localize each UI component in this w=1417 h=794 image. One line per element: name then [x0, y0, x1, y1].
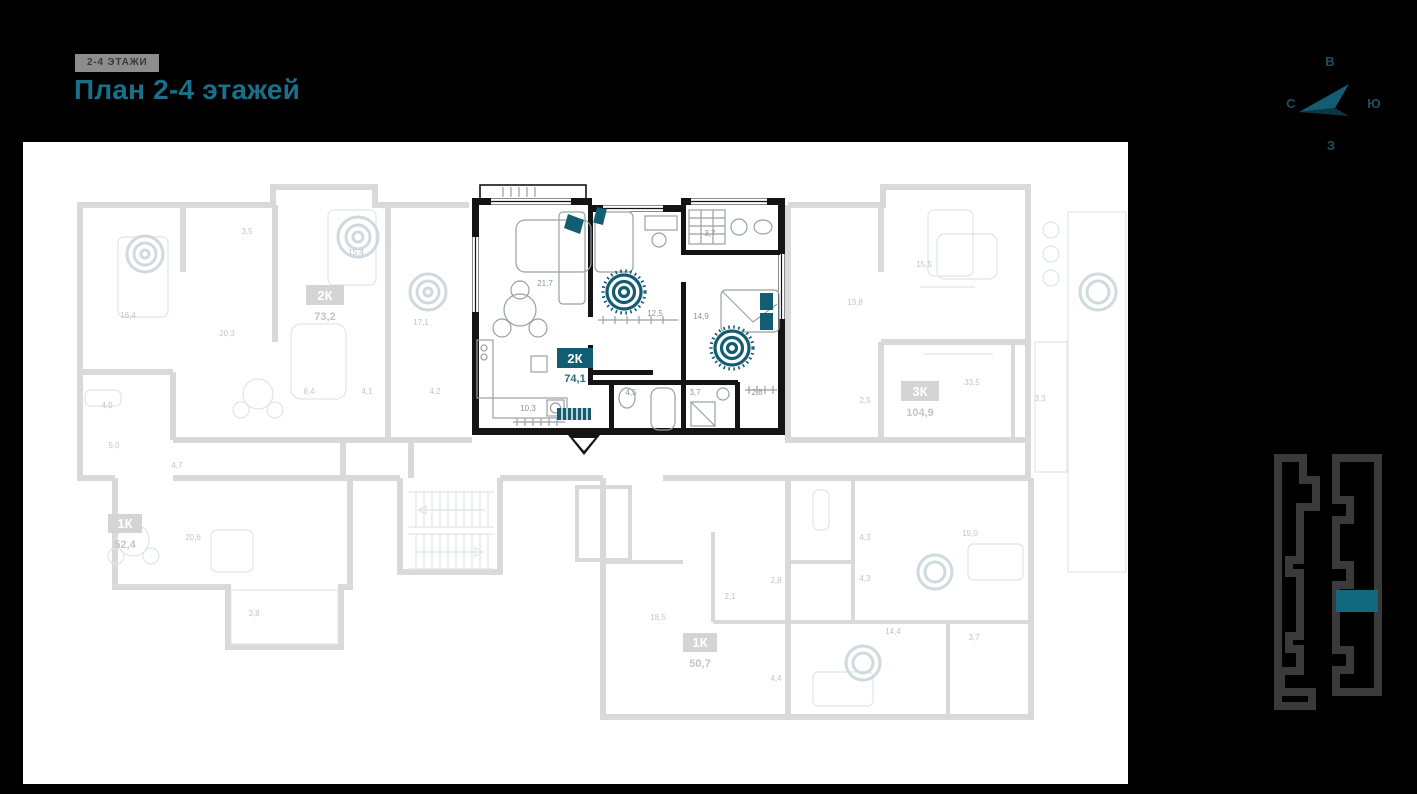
rug: [937, 234, 997, 279]
rug-spiral: [853, 653, 873, 673]
wall: [472, 198, 479, 435]
rug-spiral: [620, 288, 629, 297]
room-area: 20,6: [185, 533, 201, 542]
compass-right-letter: Ю: [1367, 96, 1380, 111]
bed-pillow: [760, 313, 773, 330]
unit-type: 1К: [692, 635, 707, 650]
room-area: 10,3: [520, 404, 536, 413]
washbasin: [731, 219, 747, 235]
room-area: 15,5: [916, 260, 932, 269]
toilet: [754, 220, 772, 234]
room-area: 4,2: [429, 387, 441, 396]
building-minimap[interactable]: [1256, 442, 1417, 722]
wall: [609, 382, 614, 435]
rug: [211, 530, 253, 572]
room-area: 18,5: [650, 613, 666, 622]
room-area: 6,4: [303, 387, 315, 396]
compass-left-letter: С: [1286, 96, 1296, 111]
rug-spiral: [846, 646, 880, 680]
staircase: [400, 478, 500, 572]
room-area: 12,5: [647, 309, 663, 318]
rug-fringe: [711, 327, 753, 369]
floorplan-gray-section: 2К 73,2 3К 104,9 1К 52,4 1К 50,7: [80, 187, 1126, 717]
floor-range-badge: 2-4 ЭТАЖИ: [75, 54, 159, 72]
wall: [115, 478, 350, 647]
rug: [291, 324, 346, 399]
page: 2-4 ЭТАЖИ План 2-4 этажей: [0, 0, 1417, 794]
room-area: 20,3: [219, 329, 235, 338]
rug-spiral: [424, 288, 432, 296]
rug-spiral: [1087, 281, 1109, 303]
wall: [593, 370, 653, 375]
washbasin: [717, 388, 729, 400]
bed: [813, 672, 873, 706]
rug-spiral: [134, 243, 156, 265]
basin: [1043, 270, 1059, 286]
room-area: 17,1: [413, 318, 429, 327]
unit-type: 2К: [567, 351, 582, 366]
unit-badge-highlighted[interactable]: 2К 74,1: [557, 348, 593, 385]
room-area: 14,9: [693, 312, 709, 321]
chair: [143, 548, 159, 564]
bed-pillow: [760, 293, 773, 310]
unit-type: 1К: [117, 516, 132, 531]
chair: [511, 281, 529, 299]
floorplan-canvas: 2К 73,2 3К 104,9 1К 52,4 1К 50,7: [23, 142, 1128, 784]
rug-spiral: [353, 232, 363, 242]
balcony: [480, 185, 586, 199]
room-area: 13,8: [847, 298, 863, 307]
shower-glass: [691, 402, 715, 426]
room-area: 33,5: [964, 378, 980, 387]
basin: [1043, 222, 1059, 238]
rug-spiral: [417, 281, 439, 303]
wall: [603, 478, 1031, 717]
wall: [681, 282, 686, 435]
bathtub: [813, 490, 829, 530]
wall: [681, 205, 686, 255]
wall: [1068, 212, 1126, 572]
wall: [788, 187, 1028, 205]
unit-type: 2К: [317, 288, 332, 303]
stair-arrows: [415, 506, 485, 556]
rug-spiral: [728, 344, 737, 353]
rug-spiral: [614, 282, 635, 303]
room-area: 3,7: [704, 229, 716, 238]
rug-spiral: [1080, 274, 1116, 310]
chair: [652, 233, 666, 247]
room-area: 4,7: [171, 461, 183, 470]
balcony: [231, 590, 338, 644]
wardrobe-rail: [598, 316, 678, 324]
unit-area: 73,2: [314, 311, 335, 323]
basin: [1043, 246, 1059, 262]
rug-spiral: [141, 250, 149, 258]
minimap-left-wing: [1278, 458, 1316, 706]
rug-spiral: [722, 338, 743, 359]
chair: [529, 319, 547, 337]
room-area: 3,5: [241, 227, 253, 236]
rug-spiral: [346, 225, 370, 249]
burner: [481, 345, 487, 351]
room-area: 4,3: [859, 574, 871, 583]
utility-shaft: [557, 408, 591, 420]
unit-2k-left[interactable]: 2К 73,2: [306, 285, 344, 323]
unit-area: 52,4: [114, 539, 136, 551]
stair-edge: [408, 492, 494, 569]
sofa-cushion: [564, 214, 584, 234]
unit-1k-bottom-middle[interactable]: 1К 50,7: [683, 633, 717, 670]
burner: [481, 354, 487, 360]
room-area: 4,1: [361, 387, 373, 396]
chair: [493, 319, 511, 337]
minimap-right-wing: [1336, 458, 1378, 692]
compass: В Ю З С: [1283, 46, 1383, 154]
rug-spiral: [410, 274, 446, 310]
page-title: План 2-4 этажей: [74, 74, 300, 106]
wall: [273, 187, 469, 205]
rug-spiral: [127, 236, 163, 272]
bath-tiles: [689, 210, 725, 244]
room-area: 15,0: [962, 529, 978, 538]
room-area: 2,5: [859, 396, 871, 405]
room-area: 3,3: [1034, 394, 1046, 403]
bed: [968, 544, 1023, 580]
room-area: 4,5: [625, 388, 637, 397]
chair: [267, 402, 283, 418]
rug-fringe: [603, 271, 645, 313]
compass-bottom-letter: З: [1327, 138, 1335, 153]
kitchen-counter: [477, 340, 493, 398]
unit-type: 3К: [912, 384, 927, 399]
rug-spiral: [925, 562, 945, 582]
chair: [233, 402, 249, 418]
wall: [1035, 342, 1067, 472]
room-area: 15,4: [348, 248, 364, 257]
room-area: 21,7: [537, 279, 553, 288]
unit-2k-highlighted[interactable]: 2К 74,1 21,7 12,5 14,9 3,7 4,5 3,7 2,8 1…: [472, 185, 785, 455]
wall: [686, 250, 780, 255]
unit-3k-right[interactable]: 3К 104,9: [901, 381, 939, 419]
wall: [593, 380, 738, 385]
unit-area: 74,1: [564, 373, 585, 385]
unit-area: 104,9: [906, 407, 934, 419]
compass-top-letter: В: [1325, 54, 1334, 69]
rug-spiral: [918, 555, 952, 589]
room-area: 2,8: [770, 576, 782, 585]
room-area: 16,4: [120, 311, 136, 320]
room-area: 14,4: [885, 627, 901, 636]
room-area: 2,1: [724, 592, 736, 601]
bed: [928, 210, 973, 276]
desk: [645, 216, 677, 230]
fridge: [531, 356, 547, 372]
room-area: 4,3: [859, 533, 871, 542]
compass-arrow-icon: [1299, 84, 1349, 116]
bathtub: [651, 388, 675, 430]
room-area: 3,8: [248, 609, 260, 618]
compass-arrow-light: [1299, 84, 1349, 112]
wall: [735, 382, 740, 435]
wall: [788, 478, 1031, 717]
unit-area: 50,7: [689, 658, 710, 670]
bath-tiles: [689, 210, 725, 244]
room-area: 3,7: [689, 388, 701, 397]
room-area: 4,0: [101, 401, 113, 410]
room-area: 3,7: [968, 633, 980, 642]
room-area: 4,4: [770, 674, 782, 683]
room-area: 2,8: [751, 388, 763, 397]
room-area: 5,0: [108, 441, 120, 450]
minimap-current-section[interactable]: [1336, 590, 1378, 612]
